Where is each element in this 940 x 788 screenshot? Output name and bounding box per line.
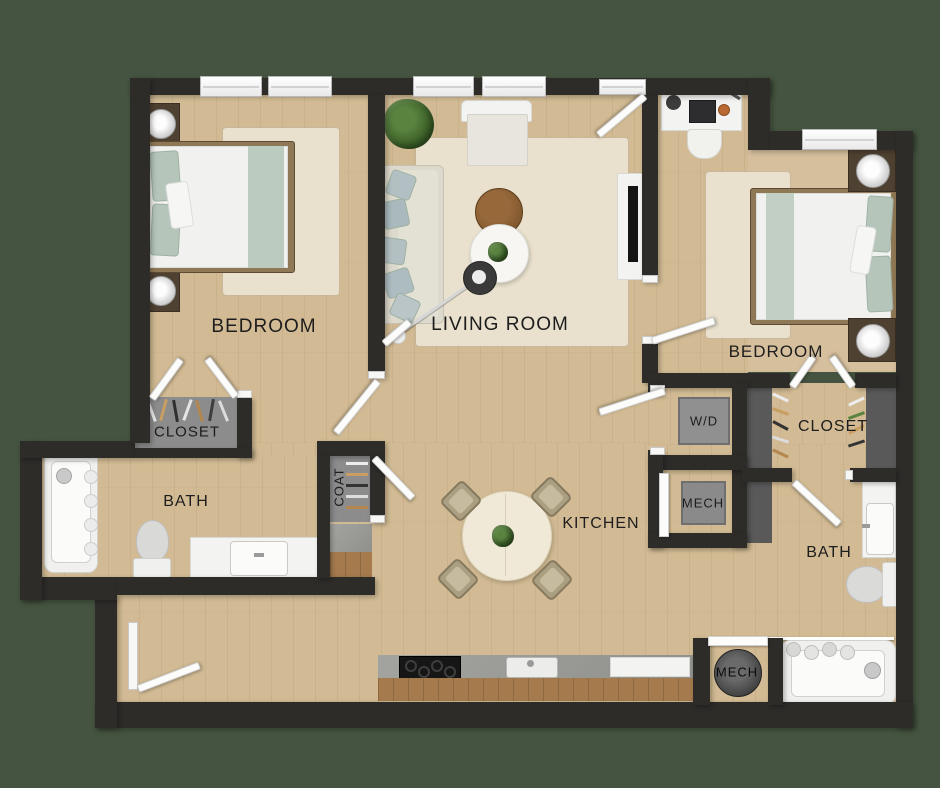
wall-segment xyxy=(693,638,710,705)
shower-curtain xyxy=(786,642,801,657)
clothes-hanger xyxy=(346,506,368,509)
room-label-bath-left: BATH xyxy=(163,493,208,511)
room-label-closet-left: CLOSET xyxy=(154,424,220,441)
cooktop-burner xyxy=(405,660,417,672)
wall-segment xyxy=(368,95,385,378)
dishwasher xyxy=(610,657,690,677)
door-jamb xyxy=(642,275,658,283)
wall-segment xyxy=(648,373,790,388)
window xyxy=(268,76,332,97)
shower-curtain xyxy=(84,518,98,532)
toilet-bowl xyxy=(136,520,169,562)
wall-segment xyxy=(20,441,135,458)
clothes-hanger xyxy=(346,462,368,465)
shower-curtain xyxy=(84,494,98,508)
room-label-mech-lower: MECH xyxy=(716,665,758,680)
wall-segment xyxy=(317,456,330,578)
wall-segment xyxy=(850,468,896,482)
wall-segment xyxy=(748,78,770,150)
tv-screen xyxy=(628,186,638,262)
door-jamb xyxy=(370,515,385,523)
toilet-bowl xyxy=(846,566,886,603)
wall-segment xyxy=(896,131,913,728)
table-lamp xyxy=(856,324,890,358)
cooktop-burner xyxy=(418,666,430,678)
wall-segment xyxy=(95,595,117,728)
room-label-wd: W/D xyxy=(690,414,718,429)
clothes-hanger xyxy=(346,473,368,476)
closet-shelf xyxy=(866,388,896,474)
wall-segment xyxy=(642,95,658,282)
room-label-kitchen: KITCHEN xyxy=(562,515,639,533)
kitchen-counter-corner-wood xyxy=(330,552,372,578)
shower-head xyxy=(56,468,72,484)
laptop xyxy=(689,100,716,123)
room-label-coat: COAT xyxy=(332,467,347,506)
kitchen-counter-corner xyxy=(330,524,372,552)
room-label-bedroom-right: BEDROOM xyxy=(729,342,824,362)
window xyxy=(802,129,877,150)
room-label-mech-upper: MECH xyxy=(682,496,724,511)
wall-segment xyxy=(742,468,792,482)
cooktop-burner xyxy=(431,660,443,672)
window xyxy=(200,76,262,97)
door-jamb xyxy=(650,447,665,455)
bed-runner xyxy=(766,193,794,320)
wall-segment xyxy=(855,373,896,388)
entry-door-leaf-open xyxy=(128,622,138,690)
dining-table-plant xyxy=(492,525,514,547)
table-lamp xyxy=(856,154,890,188)
balcony-door-threshold xyxy=(599,79,646,95)
coffee-mug xyxy=(718,104,730,116)
desk-lamp xyxy=(666,95,681,110)
sink-faucet xyxy=(254,553,264,557)
floor-lamp-head-inner xyxy=(472,270,486,284)
window xyxy=(413,76,474,97)
window xyxy=(482,76,546,97)
wall-segment xyxy=(768,638,783,705)
bed-runner xyxy=(248,146,284,268)
kitchen-bar-front xyxy=(378,678,693,701)
table-plant xyxy=(488,242,508,262)
table-lamp xyxy=(146,276,176,306)
cooktop-burner xyxy=(444,666,456,678)
door-jamb xyxy=(845,470,853,480)
kitchen-faucet xyxy=(527,660,534,667)
clothes-hanger xyxy=(346,495,368,498)
wall-segment xyxy=(317,441,385,456)
shower-curtain xyxy=(84,542,98,556)
clothes-hanger xyxy=(346,484,368,487)
wall-segment xyxy=(135,448,252,458)
wall-segment xyxy=(20,443,42,600)
room-label-bath-right: BATH xyxy=(806,544,851,562)
vanity-sink xyxy=(230,541,288,576)
door-jamb xyxy=(368,371,385,379)
vanity-sink xyxy=(866,503,894,555)
shower-curtain xyxy=(840,645,855,660)
wall-segment xyxy=(130,78,150,443)
mech-door xyxy=(708,636,768,646)
room-label-bedroom-left: BEDROOM xyxy=(211,316,316,338)
desk-chair xyxy=(687,129,722,159)
tub-faucet xyxy=(864,662,881,679)
mech-door xyxy=(659,473,669,537)
armchair-seat xyxy=(467,114,528,166)
potted-plant xyxy=(384,99,434,149)
room-label-closet-right: CLOSET xyxy=(798,418,868,436)
shower-curtain xyxy=(822,642,837,657)
shower-curtain xyxy=(804,645,819,660)
floor-plan: BEDROOM LIVING ROOM BEDROOM CLOSET COAT … xyxy=(0,0,940,788)
toilet-tank xyxy=(133,558,171,578)
table-lamp xyxy=(146,109,176,139)
wall-segment xyxy=(95,702,913,728)
room-label-living-room: LIVING ROOM xyxy=(431,314,569,336)
sink-faucet xyxy=(862,524,870,528)
wall-segment xyxy=(117,577,375,595)
door-jamb xyxy=(237,390,252,398)
shower-curtain xyxy=(84,470,98,484)
